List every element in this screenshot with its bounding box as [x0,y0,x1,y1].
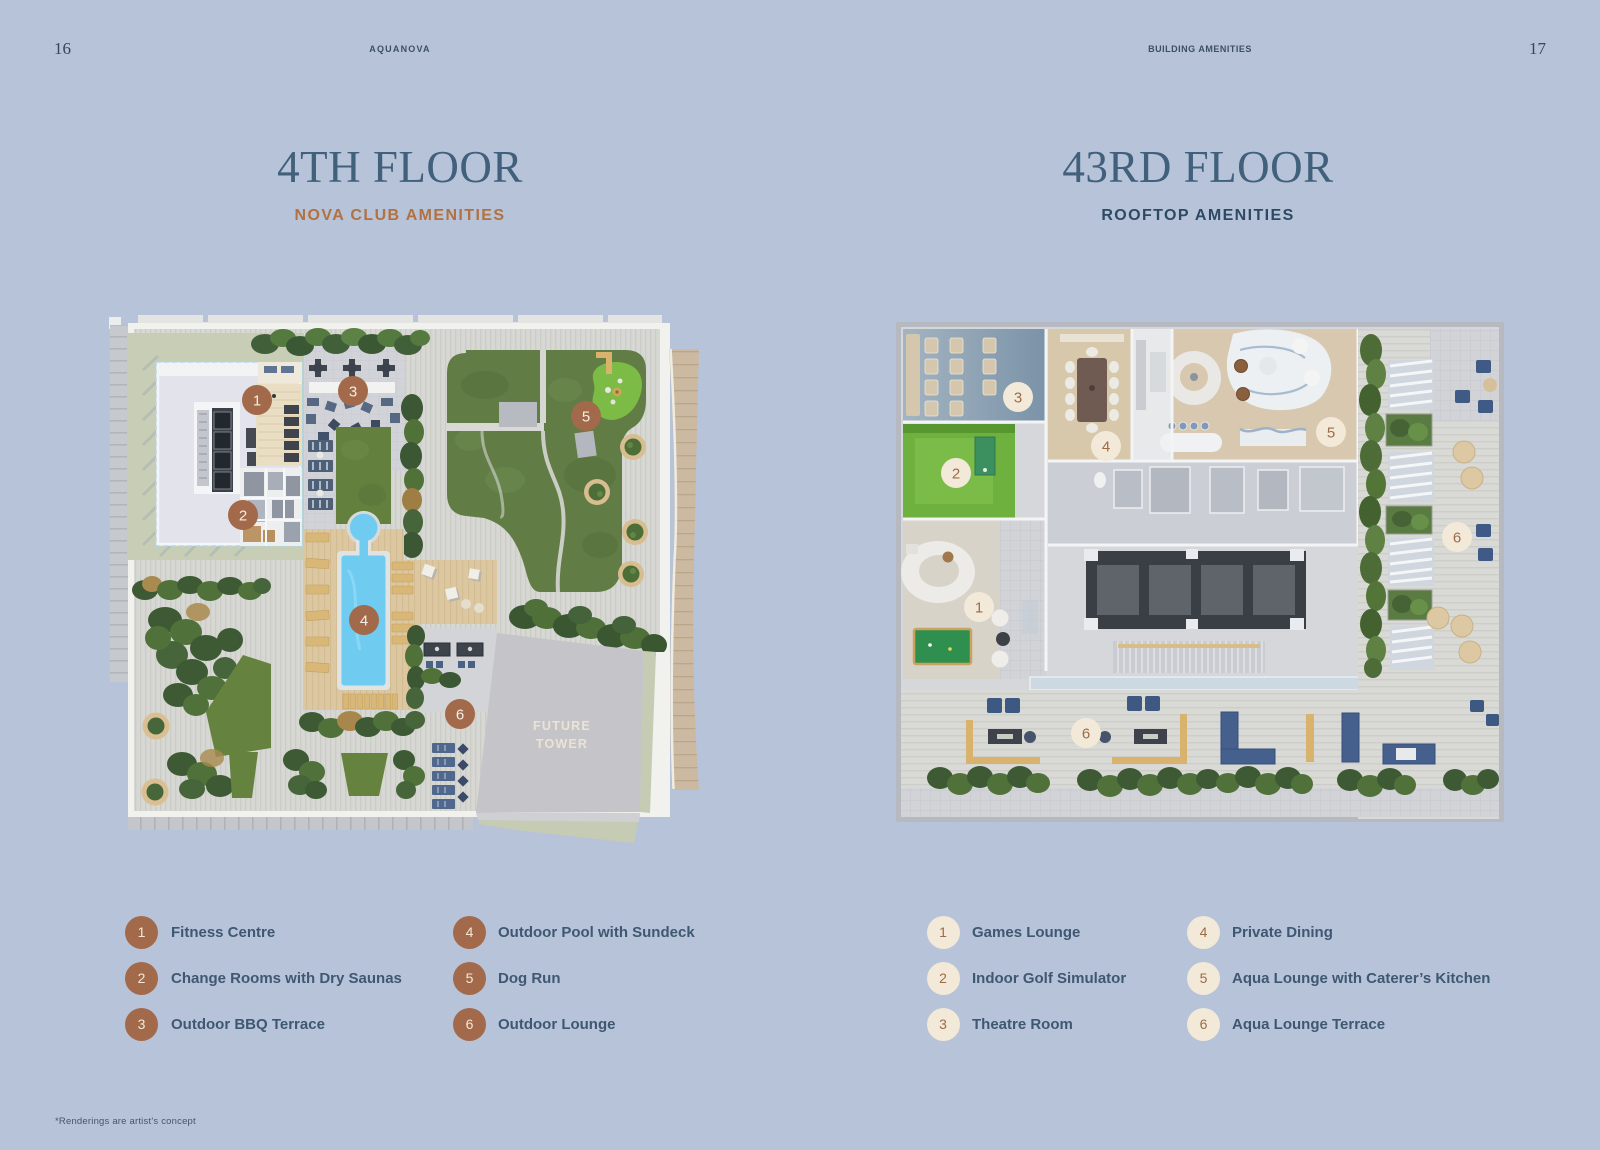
svg-text:4: 4 [360,613,368,630]
svg-text:6: 6 [456,707,464,724]
svg-text:6: 6 [1453,530,1461,547]
svg-text:3: 3 [1014,390,1022,407]
svg-text:6: 6 [1082,726,1090,743]
svg-text:FUTURE: FUTURE [533,719,591,733]
svg-text:TOWER: TOWER [536,737,588,751]
svg-text:1: 1 [253,393,261,410]
svg-text:5: 5 [1327,425,1335,442]
svg-text:3: 3 [349,384,357,401]
svg-text:2: 2 [952,466,960,483]
svg-text:1: 1 [975,600,983,617]
svg-text:2: 2 [239,508,247,525]
svg-text:5: 5 [582,409,590,426]
svg-text:4: 4 [1102,439,1110,456]
